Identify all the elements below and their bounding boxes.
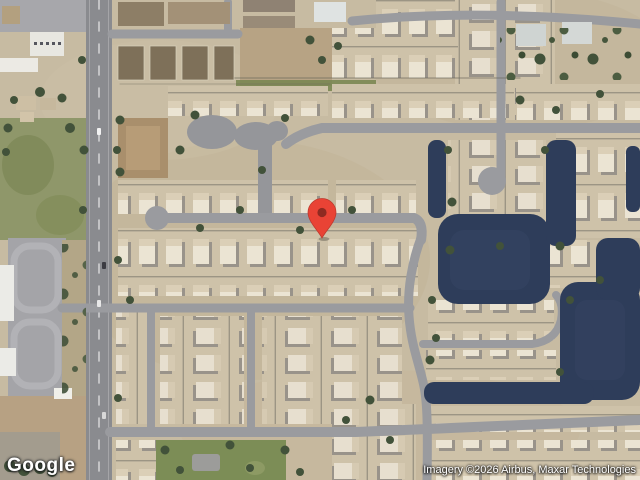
marker-inner-dot	[317, 208, 326, 217]
apartment-buildings	[118, 46, 234, 80]
park-layer	[156, 440, 286, 480]
lake-channel-west	[428, 140, 446, 218]
lake-channel-south	[424, 382, 594, 404]
cul-de-sac-bulb-east	[478, 167, 506, 195]
map-viewport[interactable]: Google Imagery ©2026 Airbus, Maxar Techn…	[0, 0, 640, 480]
playground	[192, 454, 220, 471]
cul-de-sac-bulb-west	[145, 206, 169, 230]
google-logo[interactable]: Google	[7, 455, 75, 477]
satellite-canvas	[0, 0, 640, 480]
park	[156, 440, 286, 480]
court-plaza	[266, 121, 288, 141]
imagery-attribution: Imagery ©2026 Airbus, Maxar Technologies	[423, 464, 636, 476]
